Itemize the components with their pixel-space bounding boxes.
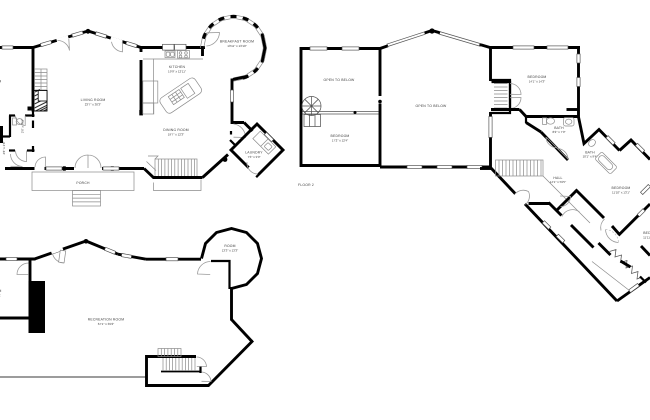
svg-text:8'2" x 7'9": 8'2" x 7'9" [552,130,565,134]
svg-text:FLOOR 2: FLOOR 2 [298,183,314,187]
svg-text:14'1" x 59'5": 14'1" x 59'5" [550,180,566,184]
svg-text:PORCH: PORCH [76,181,90,185]
svg-text:67'1" x 39'2": 67'1" x 39'2" [98,322,114,326]
svg-text:OPEN TO BELOW: OPEN TO BELOW [324,78,356,82]
svg-text:11'11": 11'11" [643,236,650,240]
svg-text:OPEN TO BELOW: OPEN TO BELOW [416,104,448,108]
svg-text:OOM: OOM [0,80,1,84]
svg-text:BED: BED [643,231,650,235]
svg-text:BEDROOM: BEDROOM [331,134,350,138]
svg-text:19'7" x 12'3": 19'7" x 12'3" [168,133,184,137]
svg-text:LAUNDRY: LAUNDRY [245,151,263,155]
svg-text:BEDROOM: BEDROOM [528,75,547,79]
svg-text:RECREATION ROOM: RECREATION ROOM [88,318,124,322]
svg-text:13'3" x 13'3": 13'3" x 13'3" [222,249,238,253]
svg-text:BEDROOM: BEDROOM [612,186,631,190]
svg-text:7'3" x 9'9": 7'3" x 9'9" [247,155,260,159]
svg-text:ROOM: ROOM [224,244,235,248]
svg-text:M: M [0,289,2,293]
svg-text:19'9" x 12'11": 19'9" x 12'11" [168,70,186,74]
svg-text:14'1" x 14'3": 14'1" x 14'3" [529,80,545,84]
svg-text:LIVING ROOM: LIVING ROOM [81,98,106,102]
svg-text:KITCHEN: KITCHEN [169,65,186,69]
svg-text:10'1" x 9'4": 10'1" x 9'4" [583,155,598,159]
svg-text:17'2" x 12'4": 17'2" x 12'4" [332,139,348,143]
svg-text:DINING ROOM: DINING ROOM [163,128,189,132]
svg-text:13'11" x 13'10": 13'11" x 13'10" [227,44,247,48]
svg-text:3'6" x 6'11": 3'6" x 6'11" [21,119,25,134]
svg-text:4'8" x 3'8": 4'8" x 3'8" [2,141,6,154]
svg-text:11'10" x 13'1": 11'10" x 13'1" [612,191,630,195]
svg-text:BREAKFAST ROOM: BREAKFAST ROOM [220,40,254,44]
svg-text:23'7" x 30'3": 23'7" x 30'3" [85,103,101,107]
